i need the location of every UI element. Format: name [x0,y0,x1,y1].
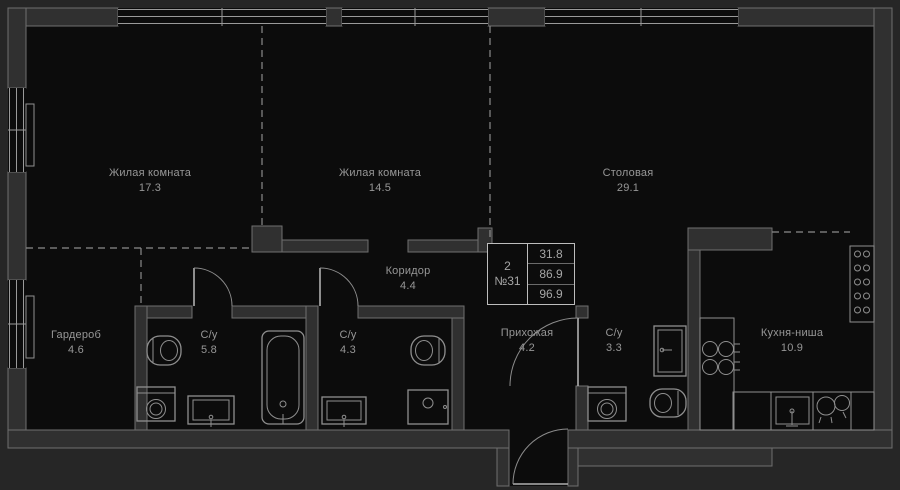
room-name: С/у [339,328,356,343]
wall [326,8,342,26]
wall [688,250,700,430]
apartment-stamp: 2 №31 31.8 86.9 96.9 [487,243,575,305]
room-label-bathroom-3: С/у 3.3 [605,326,622,356]
room-name: Столовая [603,166,654,181]
room-area: 14.5 [339,181,421,196]
room-name: С/у [605,326,622,341]
wall [576,386,588,430]
room-area: 5.8 [200,343,217,358]
total-area-value: 96.9 [528,284,574,304]
apartment-floor-plan: Жилая комната 17.3 Жилая комната 14.5 Ст… [0,0,900,490]
room-area: 4.2 [501,341,554,356]
rooms-count: 2 [504,259,511,274]
wall [8,8,26,88]
room-label-dining-room: Столовая 29.1 [603,166,654,196]
floor-plan-drawing [0,0,900,490]
room-area: 29.1 [603,181,654,196]
room-label-bathroom-1: С/у 5.8 [200,328,217,358]
wall [232,306,318,318]
room-label-kitchen-niche: Кухня-ниша 10.9 [761,326,823,356]
room-label-living-room-1: Жилая комната 17.3 [109,166,191,196]
window [118,8,326,26]
room-label-bathroom-2: С/у 4.3 [339,328,356,358]
room-label-living-room-2: Жилая комната 14.5 [339,166,421,196]
wall [306,306,318,430]
entrance-vestibule-floor [509,430,568,486]
room-area: 10.9 [761,341,823,356]
room-area: 3.3 [605,341,622,356]
room-name: Прихожая [501,326,554,341]
stamp-left-cell: 2 №31 [488,244,528,304]
room-area: 4.4 [386,279,431,294]
wall [688,228,772,250]
wall [568,448,578,486]
room-name: С/у [200,328,217,343]
room-area: 4.3 [339,343,356,358]
wall [452,318,464,430]
room-area: 17.3 [109,181,191,196]
wall [8,172,26,280]
window [545,8,738,26]
wall [874,8,892,448]
room-name: Жилая комната [109,166,191,181]
room-label-wardrobe: Гардероб 4.6 [51,328,101,358]
wall [578,448,772,466]
stamp-right-cell: 31.8 86.9 96.9 [528,244,574,304]
wall [738,8,892,26]
window [342,8,488,26]
room-area: 4.6 [51,343,101,358]
room-name: Гардероб [51,328,101,343]
area-without-summer-rooms-value: 86.9 [528,263,574,283]
wall [497,448,509,486]
window [8,280,26,368]
wall [358,306,464,318]
wall [568,430,892,448]
window [8,88,26,172]
room-label-corridor: Коридор 4.4 [386,264,431,294]
wall [488,8,545,26]
apartment-number: №31 [494,274,520,289]
wall [8,430,509,448]
room-name: Кухня-ниша [761,326,823,341]
wall [280,240,368,252]
living-area-value: 31.8 [528,244,574,263]
room-name: Коридор [386,264,431,279]
column [252,226,282,252]
room-label-hallway: Прихожая 4.2 [501,326,554,356]
wall [576,306,588,318]
room-name: Жилая комната [339,166,421,181]
